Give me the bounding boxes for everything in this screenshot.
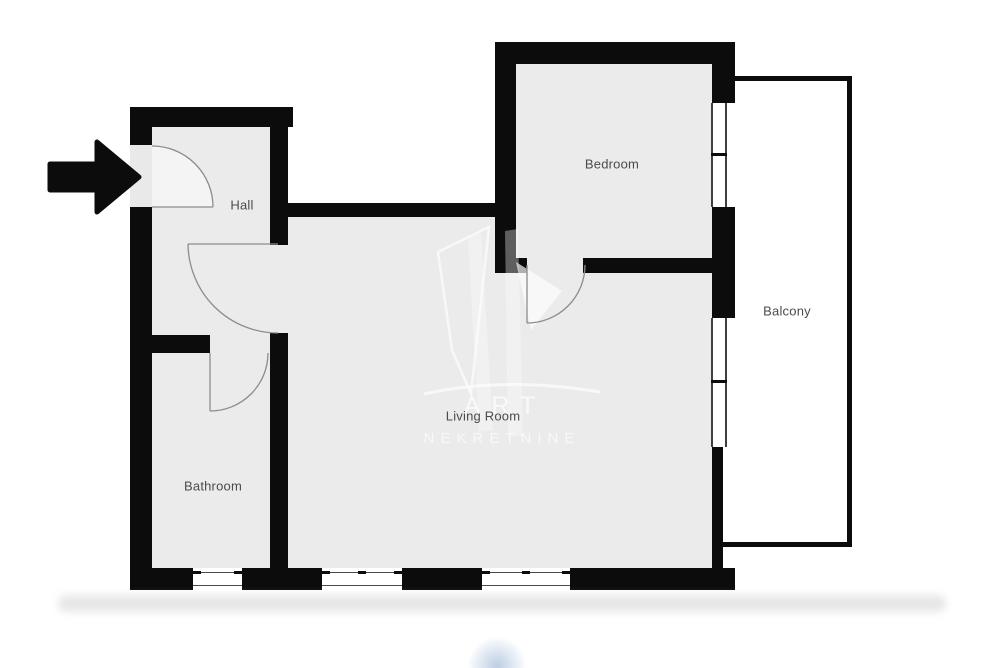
room-label-living-room: Living Room (446, 409, 520, 424)
vector-overlay: ART NEKRETNINE (0, 0, 1000, 668)
watermark-text-nekretnine: NEKRETNINE (424, 430, 581, 447)
room-label-bathroom: Bathroom (184, 479, 242, 494)
floor-plan: ART NEKRETNINE Hall Bathroom Living Room… (0, 0, 1000, 668)
watermark-ray (516, 262, 562, 330)
room-label-balcony: Balcony (763, 304, 811, 319)
room-label-hall: Hall (230, 198, 253, 213)
entrance-arrow-icon (50, 142, 139, 212)
entry-door-swing (152, 146, 213, 207)
hall-livingroom-door-arc (188, 244, 278, 333)
room-label-bedroom: Bedroom (585, 157, 639, 172)
bathroom-door-arc (210, 353, 268, 411)
plan-ground-shadow (58, 595, 946, 612)
